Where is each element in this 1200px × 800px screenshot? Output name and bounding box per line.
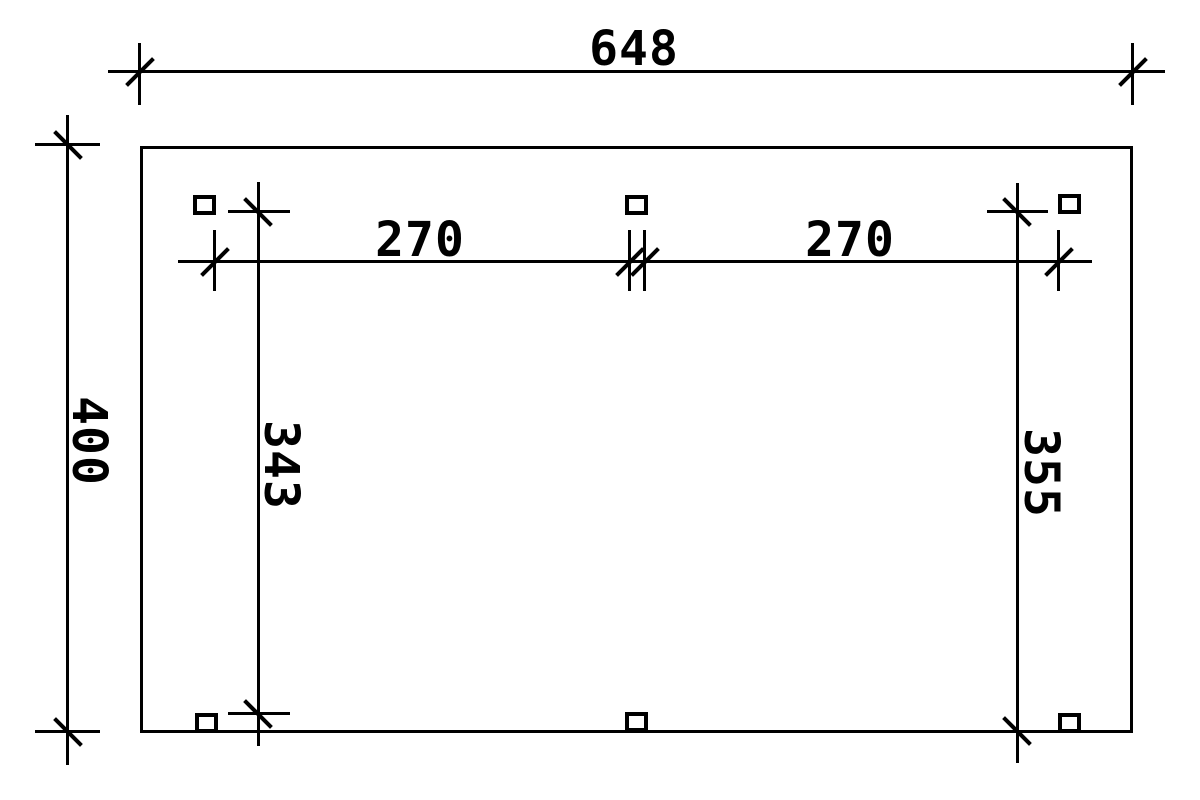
dim-label-left-depth: 343 <box>257 420 305 510</box>
drawing-canvas: 648 400 270 270 343 355 <box>0 0 1200 800</box>
post-marker-bottom-middle <box>625 712 648 732</box>
dim-label-total-width: 648 <box>589 25 679 73</box>
dim-label-bay-right: 270 <box>805 216 895 264</box>
post-marker-top-left <box>193 195 216 215</box>
dim-label-bay-left: 270 <box>375 216 465 264</box>
post-marker-bottom-left <box>195 713 218 733</box>
dimension-line-post-spacing <box>178 260 1092 263</box>
post-marker-top-right <box>1058 194 1081 214</box>
post-marker-top-middle <box>625 195 648 215</box>
dim-label-total-depth: 400 <box>65 396 113 486</box>
post-marker-bottom-right <box>1058 713 1081 733</box>
dim-label-right-depth: 355 <box>1017 428 1065 518</box>
